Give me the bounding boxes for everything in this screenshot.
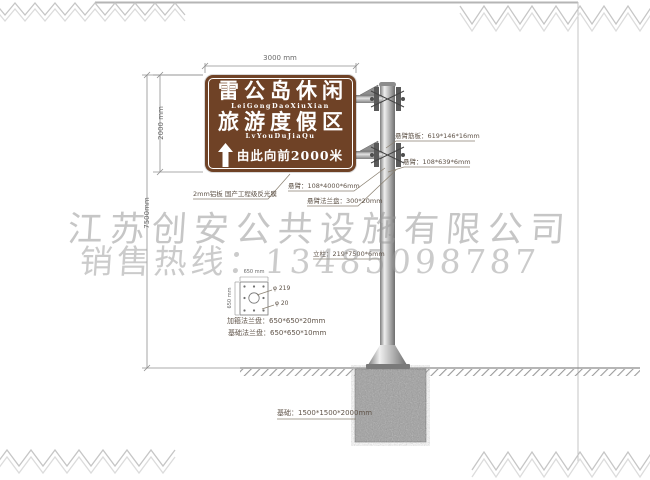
corner-zigzag-top-right — [460, 6, 650, 31]
sign-title-line1: 雷公岛休闲 — [218, 80, 348, 103]
sign-pole — [366, 82, 410, 369]
corner-zigzag-bottom-left — [0, 450, 175, 473]
dim-total-height-label: 7500mm — [143, 185, 151, 241]
callout-arm-rib-plate: 悬臂筋板：619*146*16mm — [395, 133, 480, 140]
flange-center-hole-label: φ 219 — [273, 286, 290, 293]
callout-column: 立柱：219*7500*6mm — [313, 251, 385, 258]
sign-direction-text: 由此向前2000米 — [237, 145, 343, 164]
flange-detail-square — [235, 277, 274, 315]
callout-foundation: 基础：1500*1500*2000mm — [277, 410, 372, 418]
callout-panel-material: 2mm铝板 国产工程级反光膜 — [193, 191, 277, 198]
up-arrow-icon — [218, 143, 233, 167]
dim-sign-height-label: 2000 mm — [157, 95, 165, 151]
callout-arm-flange: 悬臂法兰盘：300*20mm — [307, 198, 383, 205]
flange-width-label: 650 mm — [240, 269, 268, 275]
flange-bolt-hole-label: φ 20 — [275, 301, 289, 308]
callout-hoop-flange: 加箍法兰盘：650*650*20mm — [227, 318, 325, 326]
sign-pinyin-line2: LvYouDuJiaQu — [246, 133, 316, 141]
callout-arm-short: 悬臂：108*639*6mm — [403, 159, 471, 166]
flange-height-label: 650 mm — [227, 281, 233, 315]
drawing-lines — [0, 0, 650, 480]
engineering-drawing-page: 雷公岛休闲 LeiGongDaoXiuXian 旅游度假区 LvYouDuJia… — [0, 0, 650, 480]
dim-sign-width-label: 3000 mm — [240, 54, 320, 62]
dimension-sign-width — [202, 63, 359, 73]
callout-arm-long: 悬臂：108*4000*6mm — [288, 183, 360, 190]
sign-title-line2: 旅游度假区 — [218, 111, 348, 134]
sign-inner-border: 雷公岛休闲 LeiGongDaoXiuXian 旅游度假区 LvYouDuJia… — [208, 78, 353, 169]
ground-line — [240, 368, 640, 376]
corner-zigzag-top-left — [0, 3, 185, 21]
callout-base-flange: 基础法兰盘：650*650*10mm — [228, 330, 326, 338]
foundation-block — [355, 369, 426, 442]
corner-zigzag-bottom-right — [472, 452, 650, 477]
guide-sign-panel: 雷公岛休闲 LeiGongDaoXiuXian 旅游度假区 LvYouDuJia… — [205, 75, 356, 172]
page-frame — [95, 2, 578, 462]
